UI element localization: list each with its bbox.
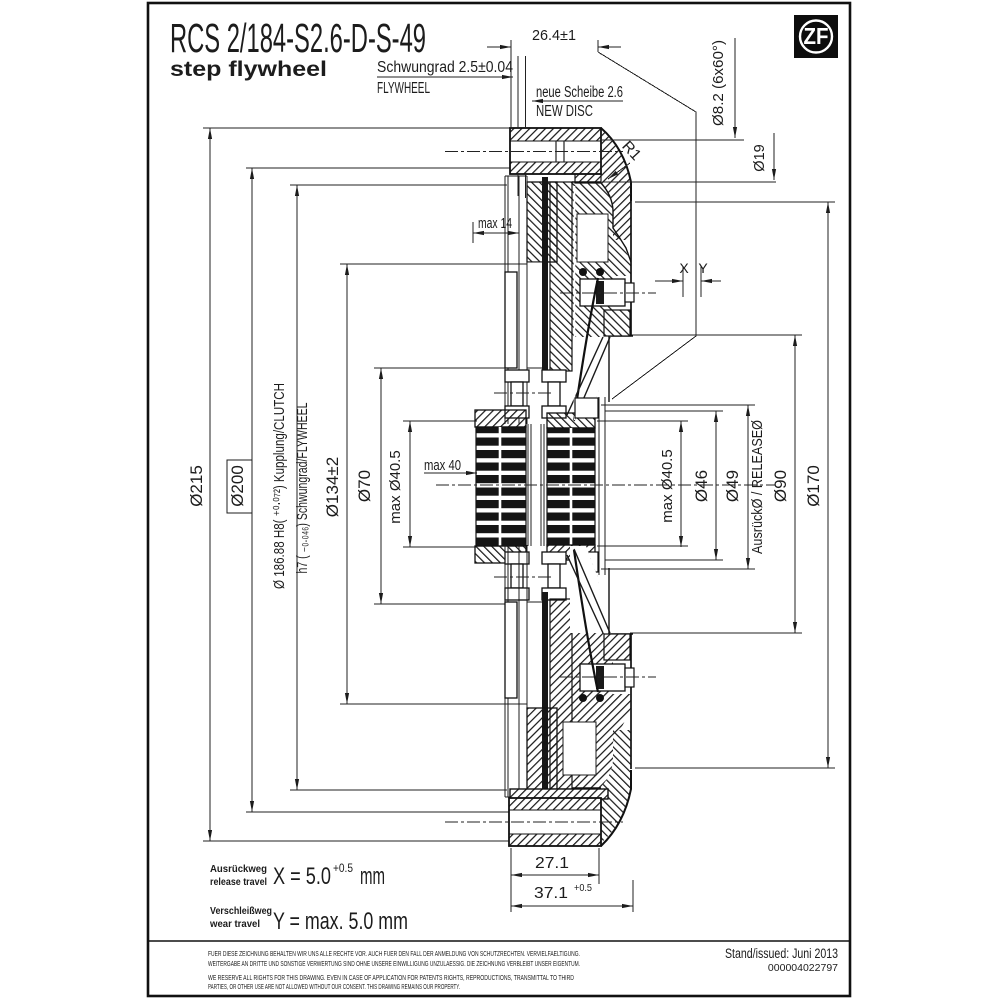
svg-text:WE RESERVE ALL RIGHTS FOR THIS: WE RESERVE ALL RIGHTS FOR THIS DRAWING. … bbox=[208, 973, 574, 982]
svg-text:wear travel: wear travel bbox=[209, 918, 260, 930]
svg-text:max Ø40.5: max Ø40.5 bbox=[659, 449, 676, 522]
svg-text:max Ø40.5: max Ø40.5 bbox=[387, 450, 404, 523]
svg-text:Ø170: Ø170 bbox=[804, 465, 823, 507]
svg-text:max 14: max 14 bbox=[478, 215, 512, 232]
svg-text:FLYWHEEL: FLYWHEEL bbox=[377, 80, 430, 97]
svg-text:RCS 2/184-S2.6-D-S-49: RCS 2/184-S2.6-D-S-49 bbox=[170, 15, 426, 61]
svg-text:Ø134±2: Ø134±2 bbox=[323, 457, 342, 517]
svg-text:max 40: max 40 bbox=[424, 457, 461, 474]
svg-text:000004022797: 000004022797 bbox=[768, 962, 838, 974]
svg-text:NEW DISC: NEW DISC bbox=[536, 103, 593, 120]
svg-text:X: X bbox=[679, 260, 689, 276]
svg-text:WEITERGABE AN DRITTE UND SONST: WEITERGABE AN DRITTE UND SONSTIGE VERWER… bbox=[208, 959, 580, 968]
svg-text:step flywheel: step flywheel bbox=[170, 58, 327, 81]
svg-text:Ø46: Ø46 bbox=[692, 470, 711, 502]
svg-text:27.1: 27.1 bbox=[535, 855, 569, 872]
svg-text:+0.5: +0.5 bbox=[574, 882, 592, 894]
svg-text:PARTIES, OR OTHER USE ARE NOT: PARTIES, OR OTHER USE ARE NOT ALLOWED WI… bbox=[208, 982, 460, 991]
svg-text:FUER DIESE ZEICHNUNG BEHALTEN: FUER DIESE ZEICHNUNG BEHALTEN WIR UNS AL… bbox=[208, 949, 580, 958]
svg-text:Ø70: Ø70 bbox=[355, 470, 374, 502]
svg-text:26.4±1: 26.4±1 bbox=[532, 27, 576, 44]
svg-text:neue Scheibe 2.6: neue Scheibe 2.6 bbox=[536, 84, 623, 101]
svg-text:h7 ( ₋₀.₀₄₆) Schwungrad/FLYWHE: h7 ( ₋₀.₀₄₆) Schwungrad/FLYWHEEL bbox=[294, 403, 311, 574]
svg-text:Verschleißweg: Verschleißweg bbox=[210, 905, 272, 917]
svg-text:Ø8.2 (6x60°): Ø8.2 (6x60°) bbox=[711, 40, 727, 126]
svg-text:ZF: ZF bbox=[804, 23, 829, 49]
svg-text:Ø90: Ø90 bbox=[771, 470, 790, 502]
svg-text:Y: Y bbox=[698, 260, 708, 276]
svg-text:37.1: 37.1 bbox=[534, 885, 568, 902]
svg-text:Y = max. 5.0 mm: Y = max. 5.0 mm bbox=[273, 908, 408, 935]
svg-text:AusrückØ / RELEASEØ: AusrückØ / RELEASEØ bbox=[749, 420, 766, 554]
svg-text:Ø215: Ø215 bbox=[187, 465, 206, 507]
svg-text:release travel: release travel bbox=[210, 876, 267, 888]
svg-text:Ø49: Ø49 bbox=[723, 470, 742, 502]
svg-text:+0.5: +0.5 bbox=[333, 861, 353, 875]
svg-text:Ø19: Ø19 bbox=[752, 144, 768, 171]
svg-text:Ø200: Ø200 bbox=[228, 465, 247, 507]
svg-text:Schwungrad 2.5±0.04: Schwungrad 2.5±0.04 bbox=[377, 59, 513, 76]
svg-text:Ø 186.88 H8( ⁺⁰⋅⁰⁷²) Kupplung/: Ø 186.88 H8( ⁺⁰⋅⁰⁷²) Kupplung/CLUTCH bbox=[271, 383, 288, 589]
svg-text:Ausrückweg: Ausrückweg bbox=[210, 863, 267, 875]
svg-text:X = 5.0: X = 5.0 bbox=[273, 863, 331, 890]
svg-text:Stand/issued: Juni 2013: Stand/issued: Juni 2013 bbox=[725, 946, 838, 961]
svg-text:mm: mm bbox=[360, 863, 385, 890]
